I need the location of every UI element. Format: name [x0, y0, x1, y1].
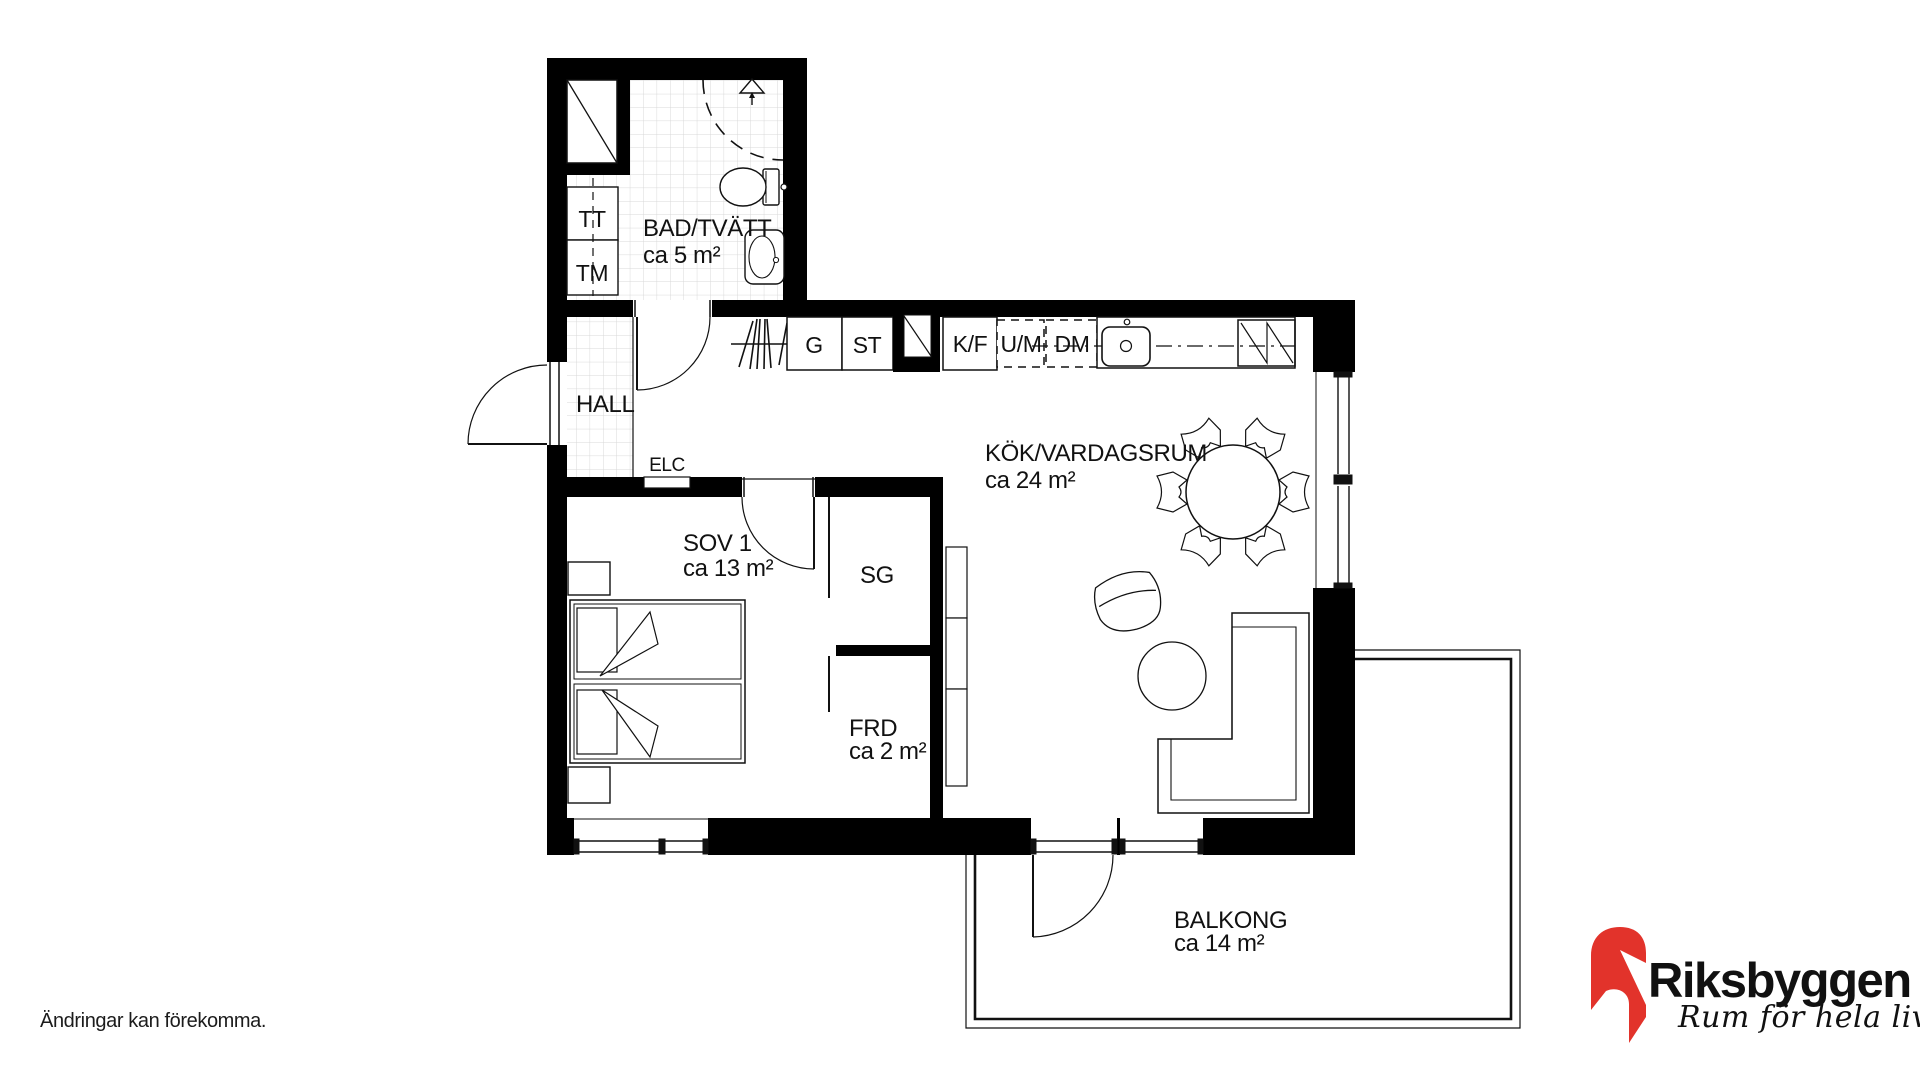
bedroom-name: SOV 1	[683, 530, 752, 557]
wall-bottom-b	[708, 818, 1031, 855]
electrical-cabinet-niche	[644, 477, 690, 488]
bedroom-window	[574, 819, 708, 854]
balcony-area: ca 14 m²	[1174, 930, 1265, 957]
bathroom-area: ca 5 m²	[643, 242, 721, 269]
wall-closet-right	[930, 477, 943, 818]
wall-left-lower	[547, 445, 567, 855]
bathroom-name: BAD/TVÄTT	[643, 215, 772, 242]
wall-bottom-c	[1203, 818, 1355, 855]
balcony-door	[1033, 855, 1113, 937]
fridge-freezer-label: K/F	[953, 331, 988, 357]
wall-top-a	[547, 300, 633, 317]
electrical-cabinet-label: ELC	[649, 455, 685, 476]
bedroom-furniture	[568, 562, 745, 803]
kitchen-living-name: KÖK/VARDAGSRUM	[985, 440, 1207, 467]
balcony-door-glazing	[1031, 839, 1117, 854]
armchair	[1090, 566, 1167, 637]
dining-set	[1157, 416, 1309, 568]
kitchen-living-area: ca 24 m²	[985, 467, 1076, 494]
washing-machine-label: TM	[576, 260, 608, 286]
shaft	[893, 315, 940, 372]
wall-bottom-a	[547, 818, 574, 855]
sliding-wardrobe-label: SG	[860, 562, 894, 589]
wardrobe-label: G	[805, 332, 823, 358]
nightstand-top	[568, 562, 610, 595]
bathroom-door	[635, 300, 710, 390]
living-room-window	[1120, 839, 1203, 854]
floor-plan-drawing: BAD/TVÄTT ca 5 m² HALL KÖK/VARDAGSRUM ca…	[0, 0, 1920, 1080]
wall-bath-top	[547, 58, 807, 80]
cleaning-cabinet-label: ST	[853, 332, 882, 358]
double-bed	[570, 600, 745, 763]
storage-area: ca 2 m²	[849, 738, 927, 765]
wall-bath-right	[783, 58, 807, 302]
wall-shower-stub-v	[617, 80, 630, 163]
oven-micro-label: U/M	[1001, 331, 1042, 357]
riksbyggen-tagline: Rum för hela livet	[1677, 1000, 1920, 1035]
wall-right-lower	[1313, 588, 1355, 855]
riksbyggen-logo-mark	[1591, 927, 1646, 1043]
wall-bedroom-top-b	[815, 477, 943, 497]
media-bench	[946, 547, 967, 786]
floor-plan-page: BAD/TVÄTT ca 5 m² HALL KÖK/VARDAGSRUM ca…	[0, 0, 1920, 1080]
riksbyggen-logo: Riksbyggen Rum för hela livet	[1591, 927, 1920, 1043]
dishwasher-label: DM	[1055, 331, 1090, 357]
hall-name: HALL	[576, 391, 634, 418]
wall-sg-frd-divider	[836, 645, 930, 656]
tumble-dryer-label: TT	[578, 206, 606, 232]
french-window-right	[1316, 372, 1352, 588]
coat-rack-icon	[731, 319, 789, 369]
wall-top-b	[712, 300, 1355, 317]
disclaimer-text: Ändringar kan förekomma.	[40, 1010, 266, 1032]
entry-door	[468, 362, 559, 445]
bedroom-area: ca 13 m²	[683, 555, 774, 582]
toilet	[720, 168, 787, 206]
side-table	[1138, 642, 1206, 710]
nightstand-bottom	[568, 767, 610, 803]
shower-tray	[567, 80, 617, 163]
wall-right-upper	[1313, 300, 1355, 372]
wall-shower-stub-h	[564, 163, 630, 175]
